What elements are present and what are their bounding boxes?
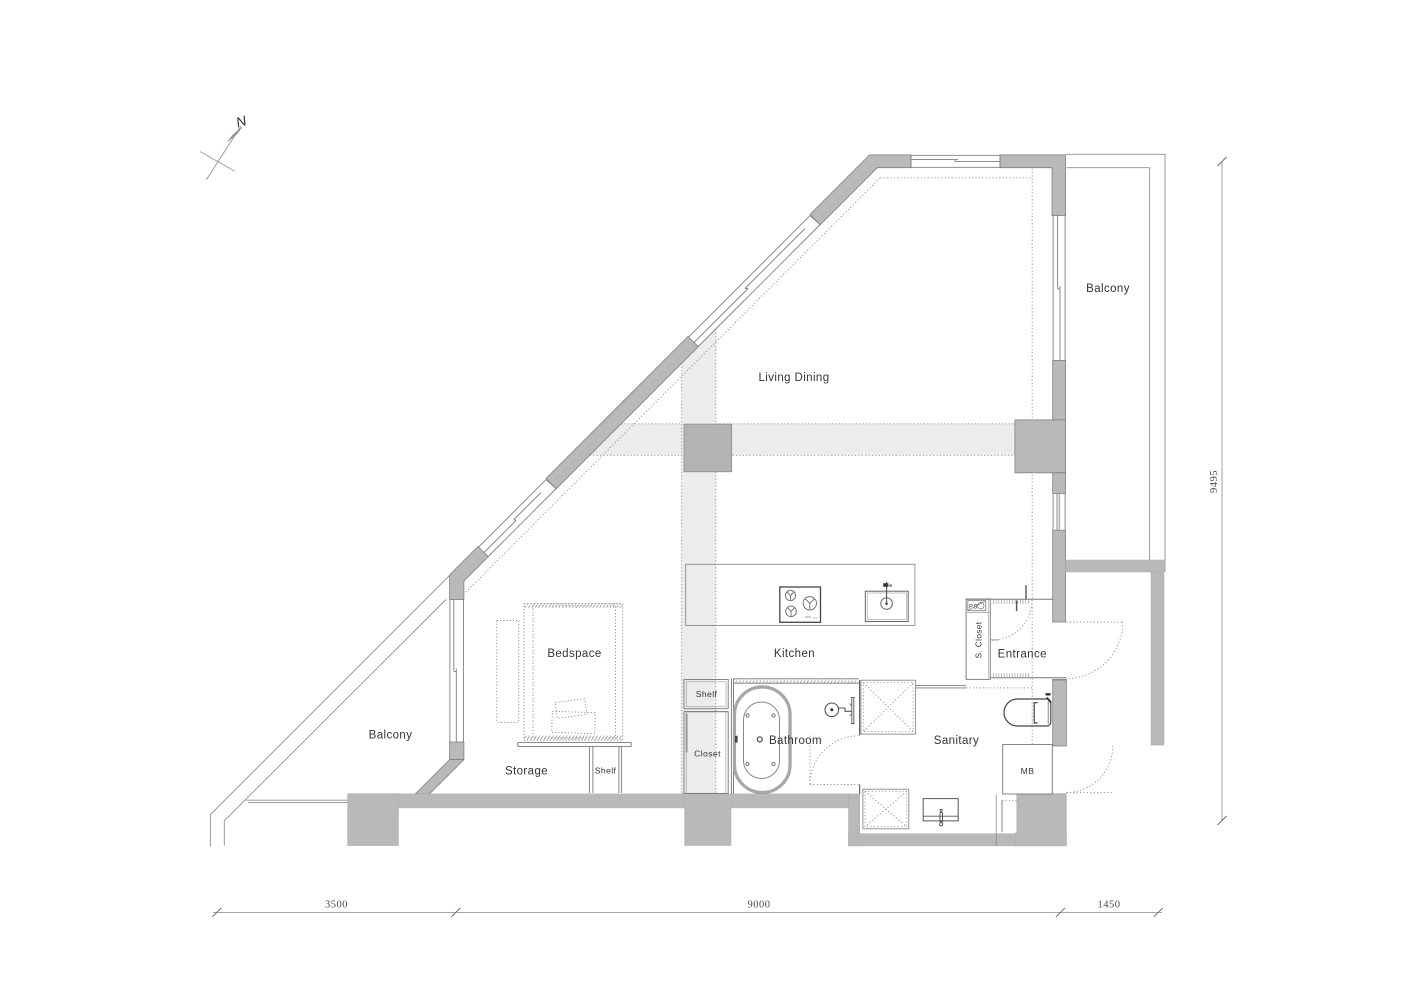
svg-text:Shelf: Shelf <box>696 689 718 699</box>
svg-text:Shelf: Shelf <box>595 766 617 776</box>
svg-text:PS: PS <box>969 605 978 611</box>
svg-text:Entrance: Entrance <box>998 649 1047 661</box>
svg-text:Living Dining: Living Dining <box>758 372 829 384</box>
svg-text:Storage: Storage <box>505 766 548 778</box>
svg-text:1450: 1450 <box>1098 900 1121 911</box>
svg-text:9495: 9495 <box>1209 470 1220 493</box>
svg-text:9000: 9000 <box>748 900 771 911</box>
svg-text:Balcony: Balcony <box>1086 283 1130 295</box>
svg-text:MB: MB <box>1021 766 1035 776</box>
svg-text:3500: 3500 <box>325 900 348 911</box>
svg-text:Closet: Closet <box>694 749 721 759</box>
svg-text:S. Closet: S. Closet <box>975 621 984 658</box>
svg-text:Bathroom: Bathroom <box>769 735 822 747</box>
svg-text:Sanitary: Sanitary <box>934 735 979 747</box>
svg-text:Bedspace: Bedspace <box>547 648 601 660</box>
svg-text:Kitchen: Kitchen <box>774 648 815 660</box>
svg-text:Balcony: Balcony <box>369 730 413 742</box>
